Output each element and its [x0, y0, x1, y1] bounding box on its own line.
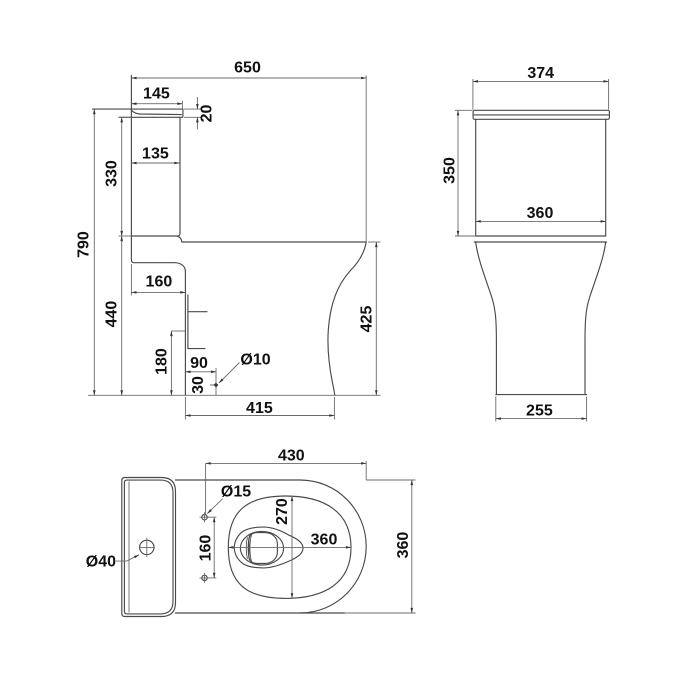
- svg-text:360: 360: [527, 205, 554, 222]
- svg-text:360: 360: [311, 531, 338, 548]
- svg-text:430: 430: [278, 448, 305, 465]
- svg-text:135: 135: [142, 146, 169, 163]
- svg-text:Ø40: Ø40: [86, 553, 116, 570]
- svg-text:160: 160: [146, 274, 173, 291]
- svg-text:415: 415: [246, 400, 273, 417]
- svg-text:350: 350: [442, 157, 459, 184]
- svg-text:425: 425: [358, 306, 375, 333]
- svg-text:790: 790: [76, 231, 93, 258]
- svg-text:180: 180: [154, 348, 171, 375]
- svg-text:440: 440: [104, 301, 121, 328]
- svg-text:360: 360: [395, 532, 412, 559]
- svg-text:650: 650: [234, 60, 261, 77]
- svg-text:30: 30: [190, 376, 207, 394]
- svg-text:270: 270: [274, 498, 291, 525]
- svg-text:374: 374: [527, 65, 554, 82]
- svg-text:20: 20: [199, 105, 216, 123]
- svg-text:90: 90: [190, 355, 208, 372]
- svg-text:255: 255: [526, 403, 553, 420]
- svg-text:160: 160: [198, 535, 215, 562]
- svg-text:330: 330: [104, 160, 121, 187]
- svg-text:Ø15: Ø15: [221, 484, 251, 501]
- svg-text:145: 145: [143, 85, 170, 102]
- svg-text:Ø10: Ø10: [240, 352, 270, 369]
